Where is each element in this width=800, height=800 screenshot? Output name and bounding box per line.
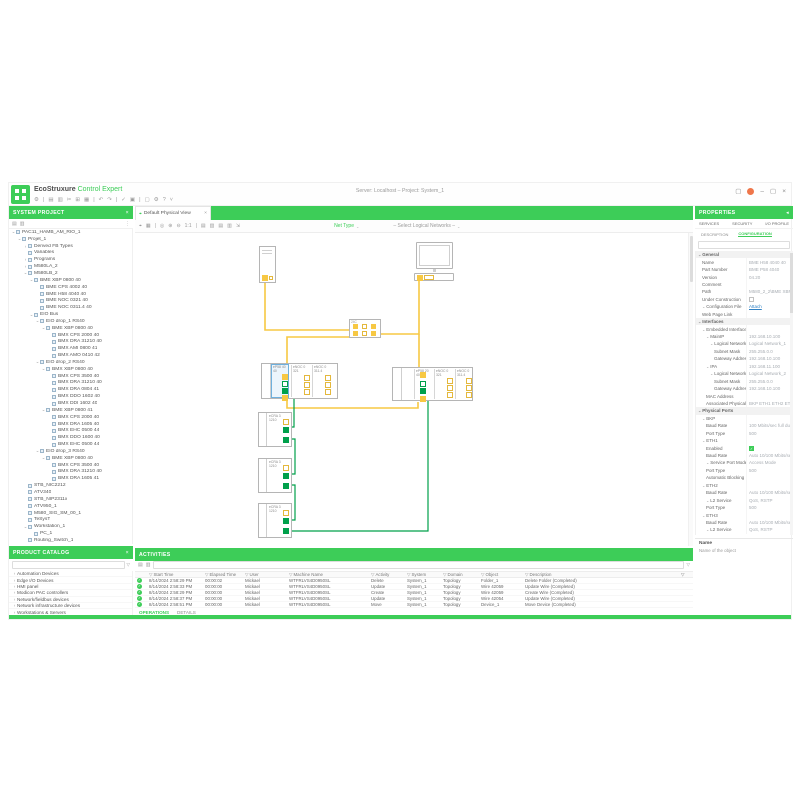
tree-item[interactable]: Variables <box>9 250 132 257</box>
property-label-text: Service Port Mode <box>710 460 746 465</box>
property-value[interactable]: Attach <box>746 303 793 310</box>
toolbar-icon[interactable]: ▤ <box>48 197 53 204</box>
column-header[interactable]: ▽Object <box>481 572 525 578</box>
column-header[interactable]: ▽Activity <box>371 572 407 578</box>
property-row[interactable]: Web Page Link <box>696 311 793 318</box>
tree-item[interactable]: STB_NIP2311x <box>9 496 132 503</box>
topology-canvas[interactable]: 24C eP58 4040 eNOC 0321 <box>135 233 693 546</box>
tree-item[interactable]: ⌄EIO drop_1 RS40 <box>9 318 132 325</box>
property-row[interactable]: Part NumberBME P58 4040 <box>696 266 793 273</box>
property-section[interactable]: ⌄General <box>696 251 793 258</box>
maximize-button[interactable]: ▢ <box>770 187 776 195</box>
filter-icon[interactable]: ▽ <box>371 572 374 578</box>
tree-item[interactable]: BMX DDO 1600 40 <box>9 434 132 441</box>
close-button[interactable]: × <box>782 188 786 195</box>
property-label-text: Under Construction <box>702 297 741 302</box>
property-row[interactable]: MAC Address <box>696 392 793 399</box>
tree-item[interactable]: BMX DRA 31210 40 <box>9 380 132 387</box>
collapse-icon[interactable]: ⌄ <box>706 527 709 532</box>
tree-item[interactable]: BME CPS 4002 40 <box>9 284 132 291</box>
success-icon: ✓ <box>137 584 142 589</box>
tree-item[interactable]: BMX DRA 0804 41 <box>9 386 132 393</box>
scrollbar-thumb[interactable] <box>690 236 693 282</box>
property-label: Name <box>696 260 746 265</box>
tree-item-icon <box>40 360 44 364</box>
tree-item-label: PC_1 <box>40 531 52 536</box>
property-row[interactable]: ⌄IPA192.168.11.100 <box>696 363 793 370</box>
switch-port[interactable] <box>353 331 358 336</box>
property-label-text: Subnet Mask <box>714 349 740 354</box>
cpu-module-selected[interactable]: eP58 4040 <box>271 364 289 398</box>
property-row[interactable]: Version04.20 <box>696 273 793 280</box>
attach-link[interactable]: Attach <box>749 304 762 309</box>
toolbar-icon[interactable]: ↶ <box>99 197 104 204</box>
canvas-tool-icon[interactable]: ⇲ <box>236 223 240 229</box>
eth-port[interactable] <box>325 389 331 395</box>
noc-module[interactable]: eNOC 0311.4 <box>312 365 332 397</box>
collapse-icon[interactable]: ⌄ <box>706 364 709 369</box>
tree-item[interactable]: BMX AMI 0800 41 <box>9 345 132 352</box>
tree-item[interactable]: ATV950_1 <box>9 503 132 510</box>
tab-default-physical-view[interactable]: ⌖ Default Physical View × <box>135 206 211 220</box>
eio-drop-3[interactable]: eCRA 31210 <box>258 503 292 538</box>
switch-port[interactable] <box>362 324 367 329</box>
toolbar-icon[interactable]: ▥ <box>146 562 151 568</box>
table-cell: Create <box>371 590 407 595</box>
tree-item[interactable]: BMX DDO 1602 40 <box>9 393 132 400</box>
tree-item-label: BME XBP 0800 41 <box>52 408 93 413</box>
tree-item[interactable]: BMX DRA 31210 40 <box>9 469 132 476</box>
toolbar-icon[interactable]: ✂ <box>67 197 72 204</box>
canvas-tool-icon[interactable]: ▤ <box>201 223 206 229</box>
eth-port[interactable] <box>447 378 453 384</box>
property-value[interactable]: QoS, RSTP⌄ <box>746 496 793 503</box>
property-row[interactable]: ⌄ETH2 <box>696 482 793 489</box>
toolbar-icon[interactable]: ▦ <box>84 197 89 204</box>
tree-item[interactable]: BMX EHC 0500 44 <box>9 441 132 448</box>
tree-item[interactable]: BMX AMO 0410 42 <box>9 352 132 359</box>
property-row[interactable]: Gateway Address192.168.10.100 <box>696 385 793 392</box>
eth-port[interactable] <box>325 382 331 388</box>
tree-item-label: Derived FB Types <box>34 244 73 249</box>
property-row[interactable]: Subnet Mask255.255.0.0 <box>696 377 793 384</box>
property-row[interactable]: Under Construction <box>696 296 793 303</box>
tree-item[interactable]: TeSysT <box>9 516 132 523</box>
table-cell: Topology <box>443 596 481 601</box>
cpu-module[interactable]: eP58 2040 <box>414 369 432 399</box>
filter-icon[interactable]: ▽ <box>149 572 152 578</box>
tree-item-icon <box>52 402 56 406</box>
tree-item-icon <box>28 251 32 255</box>
switch-port[interactable] <box>371 331 376 336</box>
value-text: 255.255.0.0 <box>749 349 773 354</box>
tree-item-icon <box>40 285 44 289</box>
net-type-dropdown[interactable]: Net Type ⌄ <box>334 223 359 229</box>
filter-icon[interactable]: ▽ <box>407 572 410 578</box>
logical-networks-dropdown[interactable]: – Select Logical Networks – ⌄ <box>393 223 460 229</box>
properties-search-input[interactable] <box>698 241 790 249</box>
tree-item[interactable]: BME H58 4040 40 <box>9 291 132 298</box>
footer-field-name: Name <box>699 541 789 546</box>
toolbar-icon[interactable]: ⊞ <box>75 197 80 204</box>
toolbar-icon[interactable]: ✓ <box>121 197 126 204</box>
column-header[interactable]: ▽ <box>681 572 693 578</box>
collapse-icon[interactable]: ⌄ <box>698 408 701 413</box>
collapse-icon[interactable]: ⌄ <box>702 327 705 332</box>
property-value: 500 <box>746 430 793 437</box>
property-row[interactable]: Baud RateAuto 10/100 Mbits/sec <box>696 489 793 496</box>
scrollbar-thumb[interactable] <box>790 253 793 313</box>
tree-item-icon <box>52 443 56 447</box>
property-row[interactable]: Port Type500 <box>696 467 793 474</box>
tree-item[interactable]: BMX CPS 3500 40 <box>9 373 132 380</box>
canvas-toolbar: ⌖▦|◎⊕⊖1:1|▤▥▤▥⇲ Net Type ⌄ – Select Logi… <box>135 220 693 233</box>
tree-item[interactable]: ›M580LA_2 <box>9 263 132 270</box>
tree-item[interactable]: BMX EHC 0500 44 <box>9 427 132 434</box>
toolbar-icon[interactable]: ▣ <box>130 197 135 204</box>
tower-device[interactable] <box>259 246 276 283</box>
layout-icon[interactable]: ▢ <box>735 187 741 195</box>
notification-badge[interactable] <box>747 188 754 195</box>
eth-port[interactable] <box>283 510 289 516</box>
noc-module[interactable]: eNOC 0321 <box>291 365 311 397</box>
tab-security[interactable]: SECURITY <box>732 221 752 226</box>
property-row[interactable]: Associated Physical PortsBKP ETH1 ETH2 E… <box>696 400 793 407</box>
tree-item-label: BMX CPS 2000 40 <box>58 415 99 420</box>
property-label: MAC Address <box>696 394 746 399</box>
property-label-text: MAC Address <box>706 394 734 399</box>
collapse-icon[interactable]: ⌄ <box>698 319 701 324</box>
product-catalog-header: PRODUCT CATALOG × <box>9 546 133 559</box>
switch-port[interactable] <box>362 331 367 336</box>
tree-item[interactable]: ⌄BME XBP 0800 40 <box>9 277 132 284</box>
toolbar-icon[interactable]: ▢ <box>145 197 150 204</box>
property-row[interactable]: ⌄BKP <box>696 415 793 422</box>
collapse-icon[interactable]: ⌄ <box>710 341 713 346</box>
tab-configuration[interactable]: CONFIGURATION <box>738 231 771 237</box>
table-cell: WTFRLVS4D0950SL <box>289 596 371 601</box>
eth-port[interactable] <box>304 382 310 388</box>
eth-port[interactable] <box>283 473 289 479</box>
tree-item[interactable]: BME NOC 0311.4 40 <box>9 304 132 311</box>
column-header[interactable]: ▽System <box>407 572 443 578</box>
eio-drop-2[interactable]: eCRA 31210 <box>258 458 292 493</box>
tree-item[interactable]: ⌄BME XBP 0800 41 <box>9 407 132 414</box>
tree-item-icon <box>52 395 56 399</box>
eth-port[interactable] <box>262 275 268 281</box>
tree-item-icon <box>28 244 32 248</box>
column-header[interactable]: ▽Start Time <box>149 572 205 578</box>
tree-item-icon <box>46 456 50 460</box>
property-row[interactable]: Subnet Mask255.255.0.0 <box>696 348 793 355</box>
column-header[interactable]: ▽Machine Name <box>289 572 371 578</box>
eth-port[interactable] <box>282 381 288 387</box>
noc-module[interactable]: eNOC 0321 <box>434 369 454 399</box>
property-label-text: Configuration File <box>706 304 741 309</box>
tree-item[interactable]: ⌄BME XBP 0800 40 <box>9 325 132 332</box>
backplane-port[interactable] <box>282 374 288 380</box>
filter-icon[interactable]: ▽ <box>687 562 690 568</box>
property-value <box>746 482 793 489</box>
filter-icon[interactable]: ▽ <box>127 562 130 568</box>
property-row[interactable]: ⌄L2 ServiceQoS, RSTP⌄ <box>696 526 793 533</box>
tree-item[interactable]: BMX CPS 2000 40 <box>9 332 132 339</box>
rack-slot-divider <box>266 413 267 446</box>
panel-menu-icon[interactable]: ⋮ <box>125 221 130 227</box>
checkbox-checked[interactable]: ✓ <box>749 446 754 451</box>
tree-item[interactable]: BMX CPS 3500 40 <box>9 462 132 469</box>
property-section[interactable]: ⌄Interfaces <box>696 318 793 325</box>
value-text: 100 Mbits/sec full duplex <box>749 423 793 428</box>
rack-left[interactable]: eP58 4040 eNOC 0321 eNOC 0311.4 <box>261 363 338 399</box>
close-tab-icon[interactable]: × <box>204 211 207 216</box>
property-row[interactable]: ⌄ETH1 <box>696 437 793 444</box>
collapse-icon[interactable]: ⌄ <box>702 416 705 421</box>
eth-port[interactable] <box>447 392 453 398</box>
eth-port[interactable] <box>304 375 310 381</box>
eth-port[interactable] <box>283 518 289 524</box>
table-cell: System_1 <box>407 590 443 595</box>
property-section[interactable]: ⌄Physical Ports <box>696 407 793 414</box>
property-row[interactable]: PathM580_2_2\BME XBP 0800 <box>696 288 793 295</box>
tree-item-label: BMX DRA 31210 40 <box>58 469 102 474</box>
property-value: 192.168.10.100 <box>746 385 793 392</box>
property-row[interactable]: Gateway Address192.168.10.100 <box>696 355 793 362</box>
collapse-icon[interactable]: ⌄ <box>706 460 709 465</box>
property-row[interactable]: ⌄Logical NetworkLogical Network_1⌄ <box>696 340 793 347</box>
tree-item[interactable]: BMX DRA 31210 40 <box>9 339 132 346</box>
project-toolbar: ▤▥⋮ <box>9 219 133 229</box>
eth-port[interactable] <box>283 465 289 471</box>
rack-slot-divider <box>266 459 267 492</box>
property-label: Gateway Address <box>696 356 746 361</box>
backplane-port[interactable] <box>420 396 426 402</box>
table-cell: Mickael <box>245 578 289 583</box>
toolbar-icon[interactable]: ⚙ <box>154 197 159 204</box>
eth-port[interactable] <box>269 276 273 280</box>
noc-module[interactable]: eNOC 0311.4 <box>455 369 473 399</box>
tree-item[interactable]: ⌄PAC11_HAMB_AM_RIO_1 <box>9 229 132 236</box>
eth-port[interactable] <box>325 375 331 381</box>
property-row[interactable]: ⌄Embedded Interface <box>696 325 793 332</box>
properties-scrollbar[interactable] <box>790 251 793 535</box>
eth-port[interactable] <box>304 389 310 395</box>
property-row[interactable]: Baud Rate100 Mbits/sec full duplex <box>696 422 793 429</box>
tower-vent <box>262 250 272 251</box>
column-header[interactable]: ▽User <box>245 572 289 578</box>
canvas-tool-icon[interactable]: ⊕ <box>168 223 172 229</box>
property-row[interactable]: Enabled✓ <box>696 444 793 451</box>
collapse-icon[interactable]: ⌄ <box>702 438 705 443</box>
value-text: 255.255.0.0 <box>749 379 773 384</box>
property-value[interactable]: Logical Network_2⌄ <box>746 370 793 377</box>
tree-item[interactable]: ⌄Projet_1 <box>9 236 132 243</box>
property-label: ⌄L2 Service <box>696 498 746 503</box>
eth-port[interactable] <box>417 275 423 281</box>
property-label-text: Logical Network <box>714 371 746 376</box>
canvas-tool-icon[interactable]: ⊖ <box>176 223 180 229</box>
tree-item[interactable]: Routing_Switch_1 <box>9 537 132 544</box>
catalog-search-input[interactable] <box>12 561 125 569</box>
filter-icon[interactable]: ▽ <box>245 572 248 578</box>
property-label: Part Number <box>696 267 746 272</box>
toolbar-icon[interactable]: ▤ <box>12 221 17 227</box>
collapse-icon[interactable]: ⌄ <box>702 513 705 518</box>
property-row[interactable]: Automatic Blocking <box>696 474 793 481</box>
tab-services[interactable]: SERVICES <box>699 221 719 226</box>
toolbar-icon[interactable]: ▥ <box>58 197 63 204</box>
pc-keyboard[interactable] <box>414 273 454 281</box>
eth-port[interactable] <box>283 419 289 425</box>
filter-icon[interactable]: ▽ <box>481 572 484 578</box>
filter-icon[interactable]: ▽ <box>289 572 292 578</box>
eth-port[interactable] <box>283 437 289 443</box>
canvas-tool-icon[interactable]: ▦ <box>146 223 151 229</box>
property-label-text: MainIP <box>710 334 724 339</box>
property-label: ⌄Configuration File <box>696 304 746 309</box>
collapse-icon[interactable]: ⌄ <box>698 252 701 257</box>
tree-item[interactable]: ⌄BMX XBP 0800 40 <box>9 366 132 373</box>
tree-item[interactable]: BMX CPS 2000 40 <box>9 414 132 421</box>
property-row[interactable]: Comment <box>696 281 793 288</box>
tab-description[interactable]: DESCRIPTION <box>701 232 728 237</box>
collapse-icon[interactable]: ⌄ <box>710 371 713 376</box>
success-icon: ✓ <box>137 578 142 583</box>
toolbar-icon[interactable]: ˅ <box>170 197 173 204</box>
pc-monitor[interactable] <box>416 242 453 269</box>
table-cell: WTFRLVS4D0950SL <box>289 602 371 607</box>
eth-port[interactable] <box>282 388 288 394</box>
canvas-tool-icon[interactable]: ▥ <box>210 223 215 229</box>
eth-port[interactable] <box>283 427 289 433</box>
canvas-tool-icon[interactable]: ◎ <box>160 223 164 229</box>
tree-item[interactable]: ⌄EIO drop_3 RS40 <box>9 448 132 455</box>
eth-port[interactable] <box>466 392 472 398</box>
toolbar-icon[interactable]: ? <box>163 197 166 204</box>
property-row[interactable]: Baud RateAuto 10/100 Mbits/sec <box>696 519 793 526</box>
column-header[interactable]: ▽Domain <box>443 572 481 578</box>
network-switch[interactable]: 24C <box>349 319 381 338</box>
property-row[interactable]: ⌄Logical NetworkLogical Network_2⌄ <box>696 370 793 377</box>
switch-port[interactable] <box>353 324 358 329</box>
collapse-icon[interactable]: ⌄ <box>706 498 709 503</box>
minimize-button[interactable]: – <box>760 188 764 195</box>
column-header[interactable]: ▽Elapsed Time <box>205 572 245 578</box>
tree-item[interactable]: ›Programs <box>9 256 132 263</box>
table-cell: Mickael <box>245 602 289 607</box>
backplane-port[interactable] <box>420 372 426 378</box>
filter-icon[interactable]: ▽ <box>443 572 446 578</box>
tree-item[interactable]: ›Derived FB Types <box>9 243 132 250</box>
property-value[interactable]: Logical Network_1⌄ <box>746 340 793 347</box>
tree-item[interactable]: PC_1 <box>9 530 132 537</box>
eth-port[interactable] <box>420 381 426 387</box>
tree-item[interactable]: BMX DRA 1605 40 <box>9 421 132 428</box>
eth-port[interactable] <box>466 385 472 391</box>
tree-item[interactable]: M580_SIG_SM_00_1 <box>9 510 132 517</box>
canvas-tool-icon[interactable]: ⌖ <box>139 223 142 229</box>
canvas-tool-icon[interactable]: ▤ <box>218 223 223 229</box>
tree-item[interactable]: ⌄Workstation_1 <box>9 523 132 530</box>
property-value[interactable]: QoS, RSTP⌄ <box>746 526 793 533</box>
canvas-tool-icon[interactable]: ▥ <box>227 223 232 229</box>
property-label: ⌄MainIP <box>696 334 746 339</box>
tree-item[interactable]: ⌄M580LB_2 <box>9 270 132 277</box>
property-row[interactable]: NameBME H58 4040 40 <box>696 258 793 265</box>
property-label-text: Gateway Address <box>714 356 746 361</box>
tree-item[interactable]: STB_NIC2212 <box>9 482 132 489</box>
value-text: BME H58 4040 40 <box>749 260 786 265</box>
wire-ring-return <box>290 394 428 531</box>
property-label-text: Port Type <box>706 468 725 473</box>
eth-port[interactable] <box>447 385 453 391</box>
tree-item[interactable]: BME NOC 0321 40 <box>9 297 132 304</box>
pin-icon[interactable]: ◂ <box>786 210 789 216</box>
eth-port[interactable] <box>283 483 289 489</box>
property-value[interactable] <box>746 296 793 303</box>
property-value[interactable]: Access Mode⌄ <box>746 459 793 466</box>
toolbar-icon[interactable]: ▥ <box>20 221 25 227</box>
eth-port[interactable] <box>283 528 289 534</box>
property-row[interactable]: ⌄Configuration FileAttach <box>696 303 793 310</box>
eio-drop-1[interactable]: eCRA 31210 <box>258 412 292 447</box>
tree-item[interactable]: ⌄BME XBP 0800 40 <box>9 455 132 462</box>
close-panel-icon[interactable]: × <box>126 210 129 216</box>
property-row[interactable]: ⌄MainIP192.168.10.100 <box>696 333 793 340</box>
tree-item[interactable]: ⌄EIO Bus <box>9 311 132 318</box>
property-label: ⌄Interfaces <box>696 319 746 324</box>
property-row[interactable]: ⌄L2 ServiceQoS, RSTP⌄ <box>696 496 793 503</box>
toolbar-icon[interactable]: ⚙ <box>34 197 39 204</box>
switch-port[interactable] <box>371 324 376 329</box>
canvas-scrollbar[interactable] <box>688 233 693 546</box>
footer-field-desc: Name of the object <box>699 548 789 553</box>
property-row[interactable]: Baud RateAuto 10/100 Mbits/sec <box>696 452 793 459</box>
property-row[interactable]: ⌄Service Port ModeAccess Mode⌄ <box>696 459 793 466</box>
collapse-icon[interactable]: ⌄ <box>702 483 705 488</box>
tree-item[interactable]: ATV340 <box>9 489 132 496</box>
table-cell: 8/14/2024 2:58:29 PM <box>149 578 205 583</box>
toolbar-icon[interactable]: ▤ <box>138 562 143 568</box>
property-row[interactable]: Port Type500 <box>696 504 793 511</box>
eth-port[interactable] <box>466 378 472 384</box>
property-row[interactable]: ⌄ETH3 <box>696 511 793 518</box>
property-row[interactable]: Port Type500 <box>696 430 793 437</box>
column-header[interactable]: ▽Description <box>525 572 681 578</box>
collapse-icon[interactable]: ⌄ <box>706 334 709 339</box>
backplane-port[interactable] <box>282 395 288 401</box>
eth-port[interactable] <box>420 388 426 394</box>
value-text: 192.168.10.100 <box>749 334 780 339</box>
canvas-tool-icon[interactable]: 1:1 <box>185 223 192 229</box>
checkbox-unchecked[interactable] <box>749 297 754 302</box>
filter-icon[interactable]: ▽ <box>525 572 528 578</box>
toolbar-icon[interactable]: ↷ <box>107 197 112 204</box>
monitor-stand <box>433 269 436 272</box>
property-value[interactable]: ✓ <box>746 444 793 451</box>
filter-icon[interactable]: ▽ <box>205 572 208 578</box>
table-cell: Update <box>371 596 407 601</box>
tab-i-o-profile[interactable]: I/O PROFILE <box>765 221 789 226</box>
tree-item[interactable]: BMX DRA 1605 41 <box>9 475 132 482</box>
tree-item[interactable]: ⌄EIO drop_2 RS40 <box>9 359 132 366</box>
close-panel-icon[interactable]: × <box>126 550 129 556</box>
tree-item[interactable]: BMX DDI 1602 40 <box>9 400 132 407</box>
rack-right[interactable]: eP58 2040 eNOC 0321 eNOC 0311.4 <box>392 367 473 401</box>
activities-search-input[interactable] <box>153 561 683 569</box>
wire-tower-switch <box>265 283 349 330</box>
collapse-icon[interactable]: ⌄ <box>702 304 705 309</box>
